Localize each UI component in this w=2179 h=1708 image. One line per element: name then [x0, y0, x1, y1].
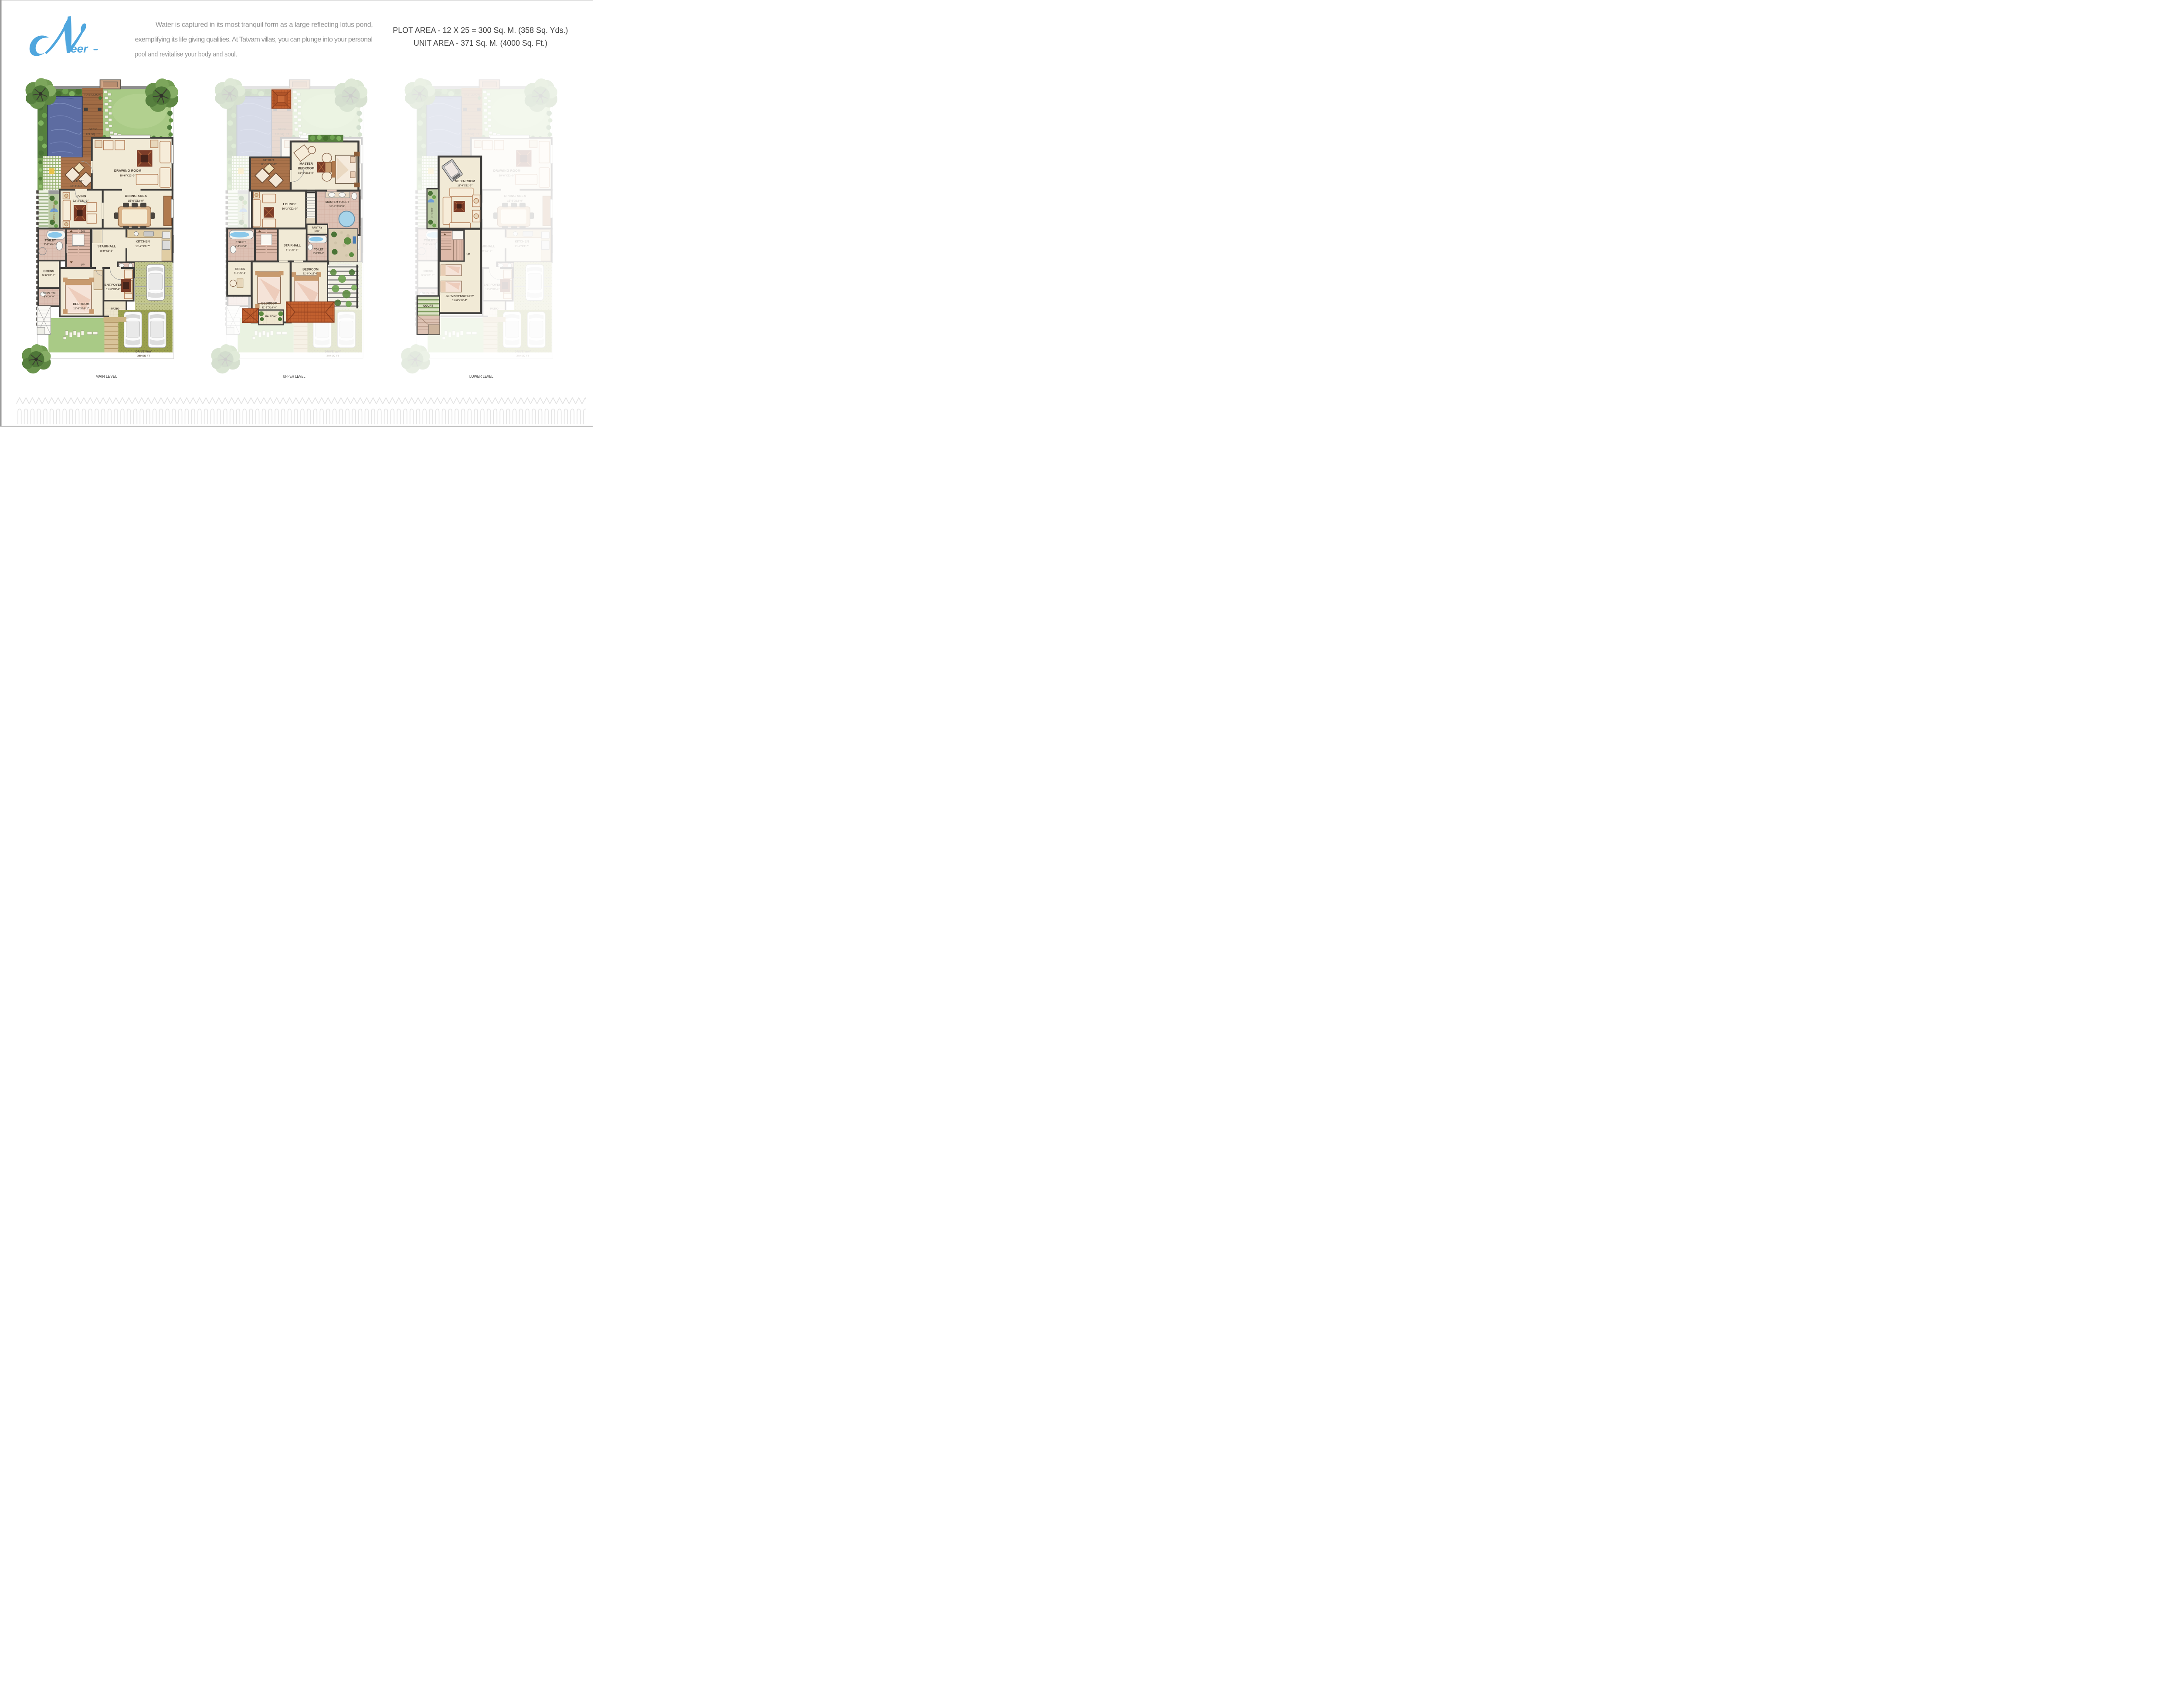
svg-text:ENT.FOYER: ENT.FOYER	[105, 283, 122, 287]
svg-text:11′-6″X21′-3″: 11′-6″X21′-3″	[458, 185, 473, 187]
svg-text:BEDROOM: BEDROOM	[302, 268, 319, 271]
svg-text:BEDROOM: BEDROOM	[261, 302, 278, 305]
svg-text:MASTER: MASTER	[299, 162, 313, 166]
svg-text:7′-9″X9′-3″: 7′-9″X9′-3″	[44, 244, 57, 246]
svg-text:DRIVE WAY: DRIVE WAY	[136, 350, 152, 353]
svg-text:121 SQ. FT: 121 SQ. FT	[86, 133, 100, 136]
svg-text:6′-3″X9′-3″: 6′-3″X9′-3″	[313, 252, 325, 255]
svg-text:LOWER COURT: LOWER COURT	[53, 200, 56, 222]
svg-text:PATIO: PATIO	[111, 308, 119, 311]
svg-text:PAVILLION: PAVILLION	[85, 94, 101, 97]
svg-text:340 SQ FT: 340 SQ FT	[137, 355, 150, 358]
svg-text:STAIRHALL: STAIRHALL	[98, 244, 116, 248]
svg-text:8′-0″X9′-3″: 8′-0″X9′-3″	[100, 250, 113, 253]
svg-text:5′-6″X4′-0″: 5′-6″X4′-0″	[44, 296, 55, 298]
svg-text:PLOT AREA - 12 X 25 = 300 Sq.: PLOT AREA - 12 X 25 = 300 Sq. M. (358 Sq…	[393, 26, 568, 35]
svg-text:DECK: DECK	[88, 128, 97, 131]
svg-text:DRAWING ROOM: DRAWING ROOM	[114, 169, 142, 173]
svg-text:UPPER LEVEL: UPPER LEVEL	[283, 374, 305, 379]
svg-text:11′-0″X12′-0″: 11′-0″X12′-0″	[303, 273, 318, 275]
svg-text:16′-3″X12′-0″: 16′-3″X12′-0″	[282, 208, 298, 210]
svg-text:BALCONY: BALCONY	[265, 315, 277, 318]
svg-text:DINING AREA: DINING AREA	[125, 194, 147, 198]
svg-text:12′-3″X10′-0″: 12′-3″X10′-0″	[261, 163, 277, 166]
svg-text:15′-2″X9′-7″: 15′-2″X9′-7″	[136, 245, 150, 248]
svg-text:11′-6″X14′-1″: 11′-6″X14′-1″	[73, 308, 89, 310]
svg-text:TOILET: TOILET	[236, 241, 246, 244]
svg-text:UNIT AREA - 371 Sq. M. (4000 S: UNIT AREA - 371 Sq. M. (4000 Sq. Ft.)	[414, 38, 547, 47]
svg-text:pool and revitalise your body: pool and revitalise your body and soul.	[135, 51, 238, 58]
svg-text:12′-3″X10′-0″: 12′-3″X10′-0″	[70, 185, 86, 188]
svg-text:COURT: COURT	[423, 305, 433, 308]
svg-text:TOILET: TOILET	[314, 249, 324, 251]
svg-text:BEDROOM: BEDROOM	[73, 302, 89, 306]
svg-text:LOUNGE: LOUNGE	[283, 202, 296, 206]
svg-text:7′-9″X9′-3″: 7′-9″X9′-3″	[235, 245, 247, 248]
svg-text:11′-6″X14′-6″: 11′-6″X14′-6″	[262, 307, 277, 309]
svg-text:DN: DN	[81, 231, 85, 234]
svg-text:KITCHEN: KITCHEN	[136, 240, 149, 244]
svg-text:BEDROOM: BEDROOM	[298, 166, 315, 170]
svg-text:exemplifying its life giving q: exemplifying its life giving qualities. …	[135, 36, 373, 44]
svg-text:8′-0″X9′-3″: 8′-0″X9′-3″	[286, 249, 299, 251]
svg-text:19′-6″X13′-0″: 19′-6″X13′-0″	[298, 172, 314, 175]
svg-text:19′-6″X13′-0″: 19′-6″X13′-0″	[120, 175, 136, 177]
svg-text:5′-6″X5′-0″: 5′-6″X5′-0″	[42, 274, 55, 277]
svg-text:SERV. TOI: SERV. TOI	[43, 292, 56, 295]
svg-text:MAIN LEVEL: MAIN LEVEL	[95, 374, 117, 379]
svg-text:UP: UP	[81, 264, 85, 267]
svg-text:15′-3″X11′-6″: 15′-3″X11′-6″	[329, 205, 345, 208]
svg-text:DRESS: DRESS	[235, 268, 245, 271]
svg-text:TOILET: TOILET	[45, 238, 56, 242]
svg-text:LOWER LEVEL: LOWER LEVEL	[469, 374, 493, 379]
svg-text:15′-6″X12′-0″: 15′-6″X12′-0″	[128, 200, 144, 203]
svg-text:DRESS: DRESS	[44, 269, 54, 273]
svg-text:PANTRY: PANTRY	[312, 227, 322, 230]
svg-text:STAIRHALL: STAIRHALL	[284, 244, 301, 247]
svg-text:6′-7″X9′-3″: 6′-7″X9′-3″	[234, 272, 247, 274]
svg-text:UP: UP	[467, 254, 470, 256]
svg-text:eer: eer	[71, 42, 88, 55]
svg-text:MEDIA ROOM: MEDIA ROOM	[455, 180, 475, 183]
svg-text:SITOUT: SITOUT	[72, 179, 84, 183]
svg-text:5′X6′: 5′X6′	[315, 230, 320, 233]
svg-text:SERVANT′S/UTILITY: SERVANT′S/UTILITY	[445, 295, 474, 298]
svg-text:SITOUT: SITOUT	[263, 159, 275, 162]
svg-text:11′-0″X9′-4″: 11′-0″X9′-4″	[106, 288, 121, 291]
svg-text:MASTER TOILET: MASTER TOILET	[326, 201, 350, 204]
svg-text:COURT: COURT	[431, 207, 434, 218]
svg-text:Water is captured in its most: Water is captured in its most tranquil f…	[156, 21, 373, 29]
svg-text:12′-3″X11′-3″: 12′-3″X11′-3″	[73, 200, 88, 203]
svg-text:11′-6″X14′-9″: 11′-6″X14′-9″	[452, 299, 468, 302]
